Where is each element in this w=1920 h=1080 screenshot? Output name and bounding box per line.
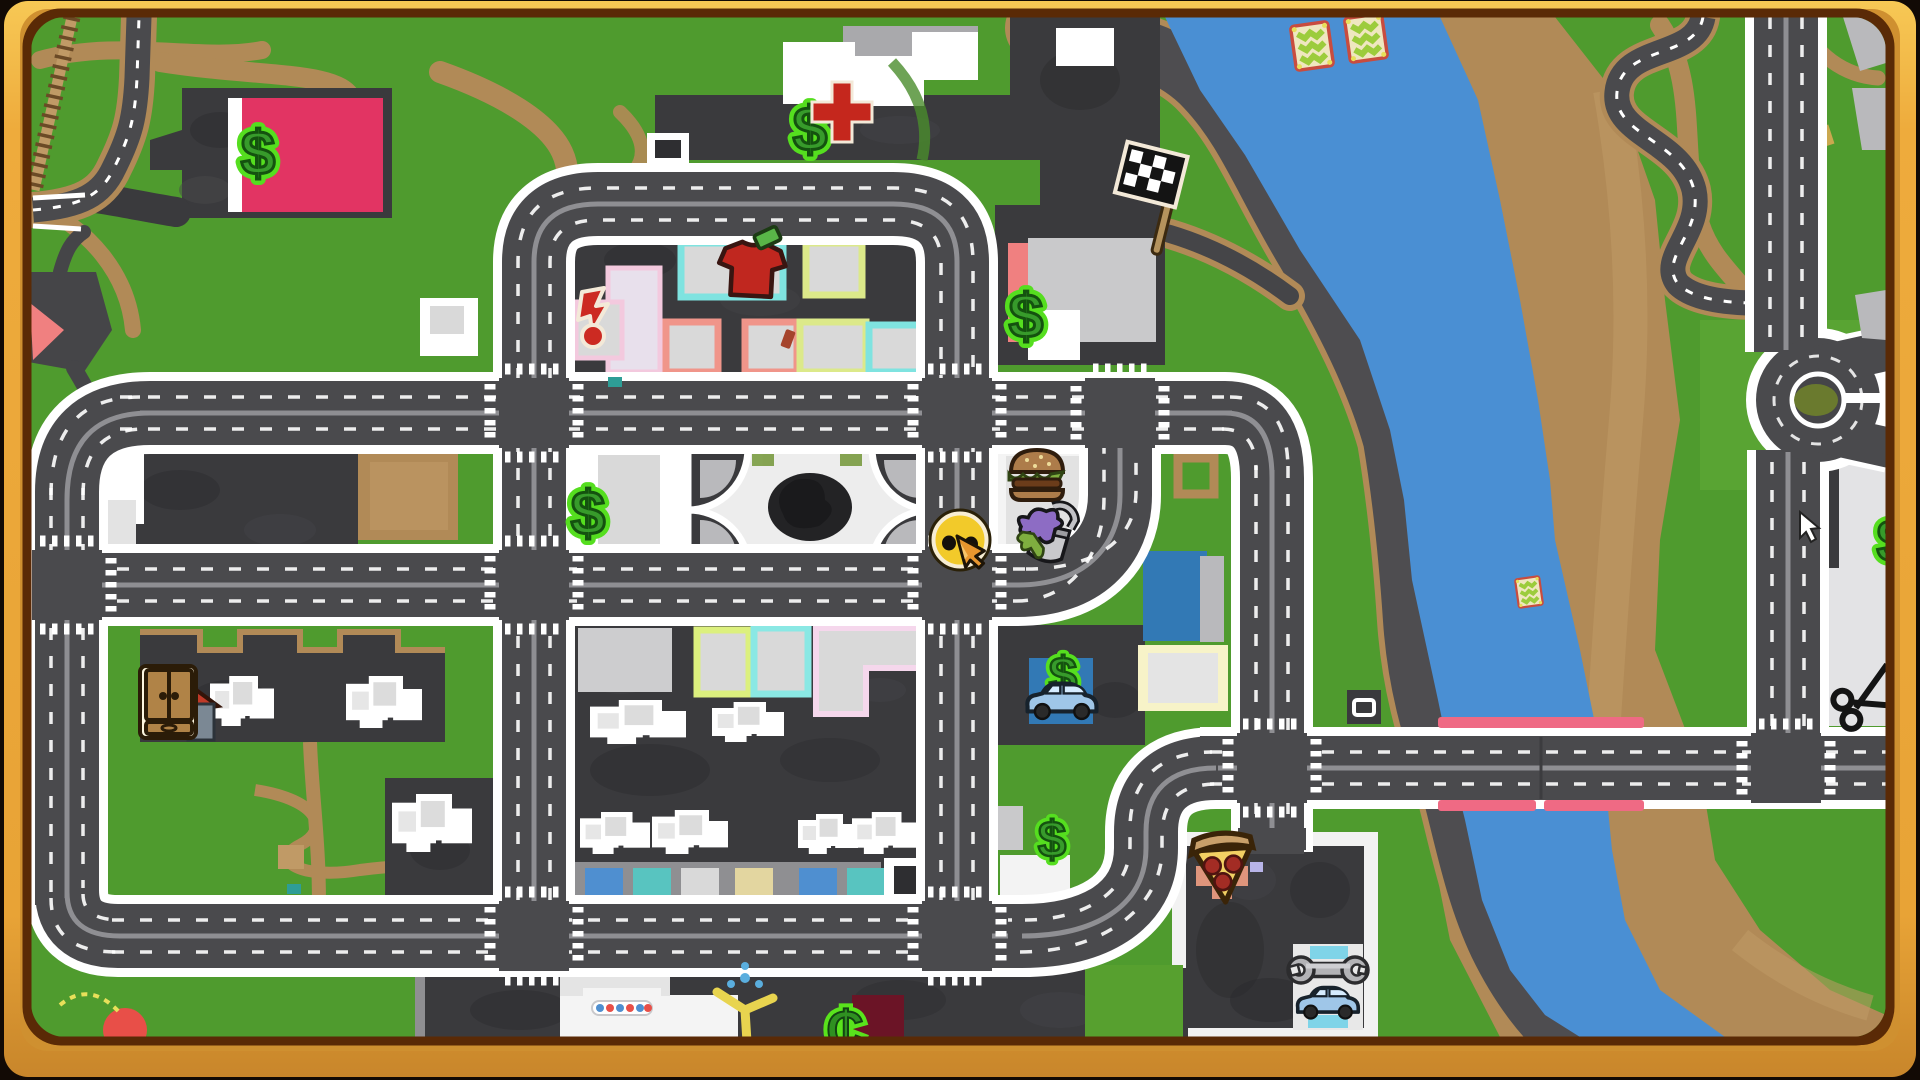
svg-text:$: $ <box>241 119 275 188</box>
svg-text:$: $ <box>1009 282 1043 351</box>
svg-text:$: $ <box>571 479 605 548</box>
svg-text:$: $ <box>1038 810 1066 867</box>
